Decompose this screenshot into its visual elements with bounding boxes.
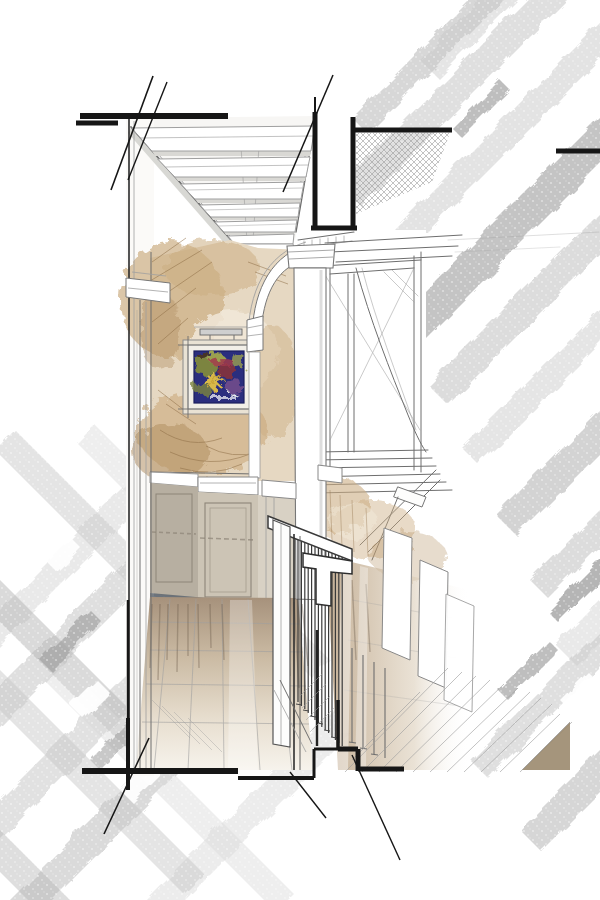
picture-light — [200, 329, 242, 335]
architectural-sketch: Hand-drawn interior perspective sketch o… — [0, 0, 600, 900]
left-cabinet — [150, 483, 198, 601]
column-capital — [287, 244, 335, 268]
front-rail — [198, 477, 258, 495]
rail-post — [273, 520, 290, 747]
back-pilaster — [249, 352, 260, 478]
sketch-canvas: Hand-drawn interior perspective sketch o… — [0, 0, 600, 900]
chair-rail-right — [318, 465, 342, 483]
chair-rail-left — [262, 480, 296, 499]
ceiling-beams — [132, 126, 315, 244]
front-cabinet — [198, 492, 258, 607]
